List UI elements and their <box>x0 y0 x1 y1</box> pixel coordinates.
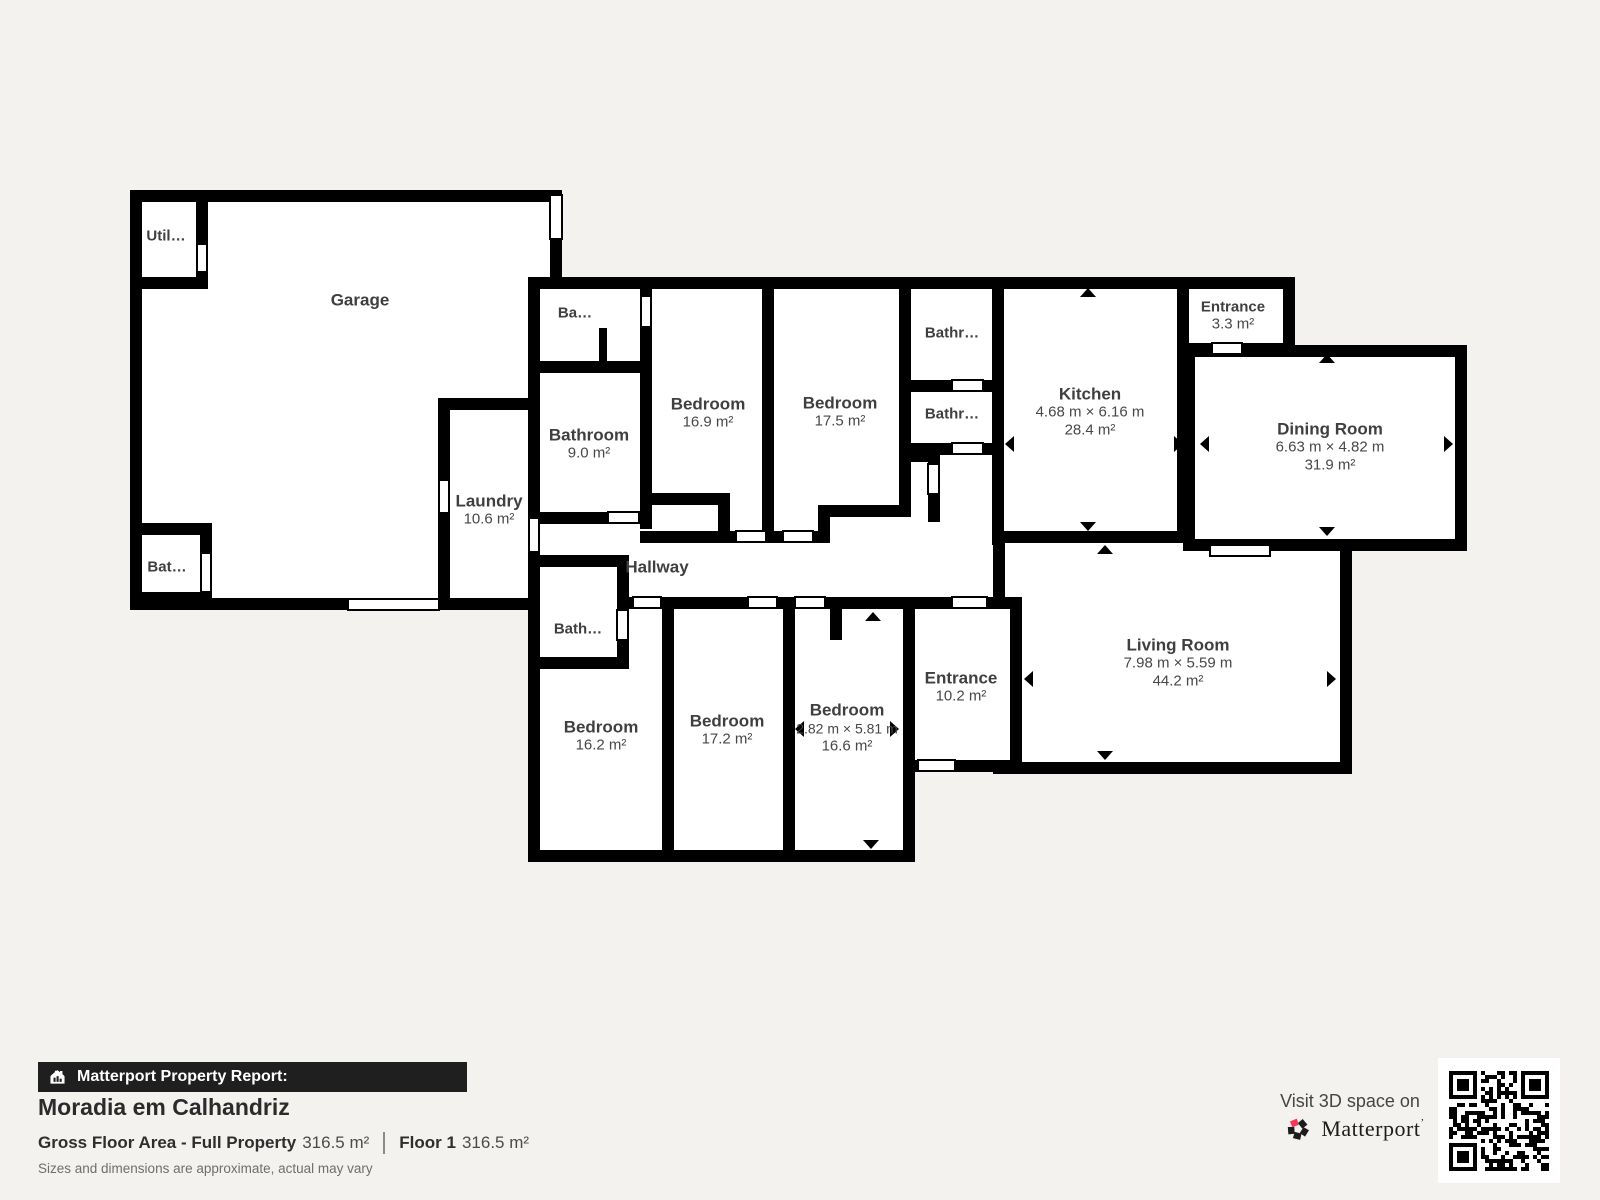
window-opening <box>549 194 563 240</box>
door-opening <box>640 295 652 328</box>
matterport-logo-icon <box>1283 1114 1313 1144</box>
room-label-entrance-main: Entrance 10.2 m² <box>925 669 998 706</box>
wall-segment <box>642 493 730 505</box>
room-label-hallway: Hallway <box>625 558 688 577</box>
room-name: Bathr… <box>925 325 979 342</box>
room-label-bathr-1: Bathr… <box>925 325 979 342</box>
room-area: 17.5 m² <box>803 413 878 431</box>
door-opening <box>782 530 814 543</box>
room-name: Kitchen <box>1036 385 1145 404</box>
door-opening <box>951 596 988 609</box>
room-name: Entrance <box>1201 299 1265 316</box>
room-name: Bedroom <box>796 701 898 720</box>
door-opening <box>951 379 984 392</box>
room-label-bedroom-172: Bedroom 17.2 m² <box>690 712 765 749</box>
room-dimensions: 2.82 m × 5.81 m <box>796 720 898 738</box>
room-name: Laundry <box>455 492 522 511</box>
room-label-utility: Util… <box>146 228 185 245</box>
door-opening <box>607 511 640 524</box>
dimension-arrow-down <box>1097 751 1113 760</box>
door-opening <box>438 479 450 514</box>
door-opening <box>951 442 984 455</box>
room-name: Bedroom <box>564 718 639 737</box>
room-label-bathr-2: Bathr… <box>925 406 979 423</box>
room-dimensions: 4.68 m × 6.16 m <box>1036 404 1145 422</box>
room-dimensions: 7.98 m × 5.59 m <box>1124 655 1233 673</box>
room-label-bedroom-162: Bedroom 16.2 m² <box>564 718 639 755</box>
door-opening <box>1211 342 1243 355</box>
room-area: 16.6 m² <box>796 738 898 756</box>
garage-door-opening <box>347 598 440 611</box>
room-label-entrance-small: Entrance 3.3 m² <box>1201 299 1265 334</box>
wall-segment <box>599 328 607 367</box>
room-name: Garage <box>331 291 390 310</box>
dimension-arrow-right <box>1444 436 1453 452</box>
room-name: Living Room <box>1124 636 1233 655</box>
room-label-kitchen: Kitchen 4.68 m × 6.16 m 28.4 m² <box>1036 385 1145 440</box>
dimension-arrow-up <box>1097 545 1113 554</box>
report-header-bar: Matterport Property Report: <box>38 1062 467 1092</box>
gfa-label: Gross Floor Area - Full Property <box>38 1133 296 1153</box>
room-label-bat: Bat… <box>147 559 186 576</box>
floor-plan: Util… Garage Bat… Laundry 10.6 m² Ba… Ba… <box>0 0 1600 1000</box>
room-area: 44.2 m² <box>1124 673 1233 691</box>
room-area: 3.3 m² <box>1201 316 1265 334</box>
dimension-arrow-up <box>1319 354 1335 363</box>
door-opening <box>1209 544 1271 557</box>
room-bath-small <box>528 555 629 669</box>
room-name: Ba… <box>558 305 592 322</box>
visit-3d-text: Visit 3D space on <box>1250 1091 1450 1112</box>
door-opening <box>917 759 956 772</box>
dimension-arrow-left <box>1024 671 1033 687</box>
door-opening <box>927 463 940 495</box>
wall-segment <box>528 361 652 373</box>
door-opening <box>747 596 778 609</box>
door-opening <box>632 596 662 609</box>
brand-text: Matterport <box>1321 1116 1420 1141</box>
room-dimensions: 6.63 m × 4.82 m <box>1276 439 1385 457</box>
room-name: Dining Room <box>1276 420 1385 439</box>
dimension-arrow-left <box>1200 436 1209 452</box>
house-chart-icon <box>48 1068 67 1087</box>
door-opening <box>735 530 767 543</box>
door-opening <box>528 517 540 553</box>
room-label-bedroom-175: Bedroom 17.5 m² <box>803 394 878 431</box>
dimension-arrow-up <box>865 612 881 621</box>
dimension-arrow-up <box>1080 288 1096 297</box>
dimension-arrow-down <box>1319 527 1335 536</box>
door-opening <box>616 609 629 641</box>
wall-segment <box>762 282 774 543</box>
room-name: Bathr… <box>925 406 979 423</box>
room-name: Bathroom <box>549 426 629 445</box>
dimension-arrow-left <box>1005 436 1014 452</box>
room-name: Bath… <box>554 621 602 638</box>
room-area: 28.4 m² <box>1036 422 1145 440</box>
room-label-ba: Ba… <box>558 305 592 322</box>
door-opening <box>794 596 826 609</box>
wall-segment <box>992 282 1004 545</box>
room-label-laundry: Laundry 10.6 m² <box>455 492 522 529</box>
room-name: Bat… <box>147 559 186 576</box>
room-label-garage: Garage <box>331 291 390 310</box>
floor-label: Floor 1 <box>399 1133 456 1153</box>
matterport-wordmark: Matterport’ <box>1321 1116 1424 1142</box>
divider <box>383 1132 385 1154</box>
gfa-value: 316.5 m² <box>302 1133 369 1153</box>
dimension-arrow-down <box>863 840 879 849</box>
wall-segment <box>899 282 911 517</box>
qr-code <box>1438 1058 1560 1183</box>
room-name: Bedroom <box>671 395 746 414</box>
wall-segment <box>830 609 842 640</box>
door-opening <box>200 552 212 593</box>
room-label-bedroom-169: Bedroom 16.9 m² <box>671 395 746 432</box>
dimension-arrow-right <box>1327 671 1336 687</box>
room-area: 10.6 m² <box>455 511 522 529</box>
room-label-bath-small: Bath… <box>554 621 602 638</box>
matterport-brand: Matterport’ <box>1244 1114 1464 1144</box>
door-opening <box>196 243 208 273</box>
disclaimer-text: Sizes and dimensions are approximate, ac… <box>38 1161 373 1176</box>
brand-trademark-tick: ’ <box>1420 1117 1424 1129</box>
property-name: Moradia em Calhandriz <box>38 1094 290 1121</box>
room-area: 10.2 m² <box>925 688 998 706</box>
room-name: Util… <box>146 228 185 245</box>
room-name: Bedroom <box>803 394 878 413</box>
report-title: Matterport Property Report: <box>77 1068 288 1086</box>
room-name: Bedroom <box>690 712 765 731</box>
dimension-arrow-down <box>1080 522 1096 531</box>
room-name: Entrance <box>925 669 998 688</box>
room-name: Hallway <box>625 558 688 577</box>
dimension-arrow-right <box>1174 436 1183 452</box>
room-label-bathroom: Bathroom 9.0 m² <box>549 426 629 463</box>
room-area: 31.9 m² <box>1276 457 1385 475</box>
room-area: 16.2 m² <box>564 737 639 755</box>
wall-segment <box>818 505 911 517</box>
room-label-living: Living Room 7.98 m × 5.59 m 44.2 m² <box>1124 636 1233 691</box>
room-area: 16.9 m² <box>671 414 746 432</box>
area-stats: Gross Floor Area - Full Property 316.5 m… <box>38 1132 529 1154</box>
room-label-dining: Dining Room 6.63 m × 4.82 m 31.9 m² <box>1276 420 1385 475</box>
room-area: 9.0 m² <box>549 445 629 463</box>
floor-value: 316.5 m² <box>462 1133 529 1153</box>
room-label-bedroom-166: Bedroom 2.82 m × 5.81 m 16.6 m² <box>796 701 898 756</box>
wall-segment <box>911 450 940 462</box>
room-area: 17.2 m² <box>690 731 765 749</box>
